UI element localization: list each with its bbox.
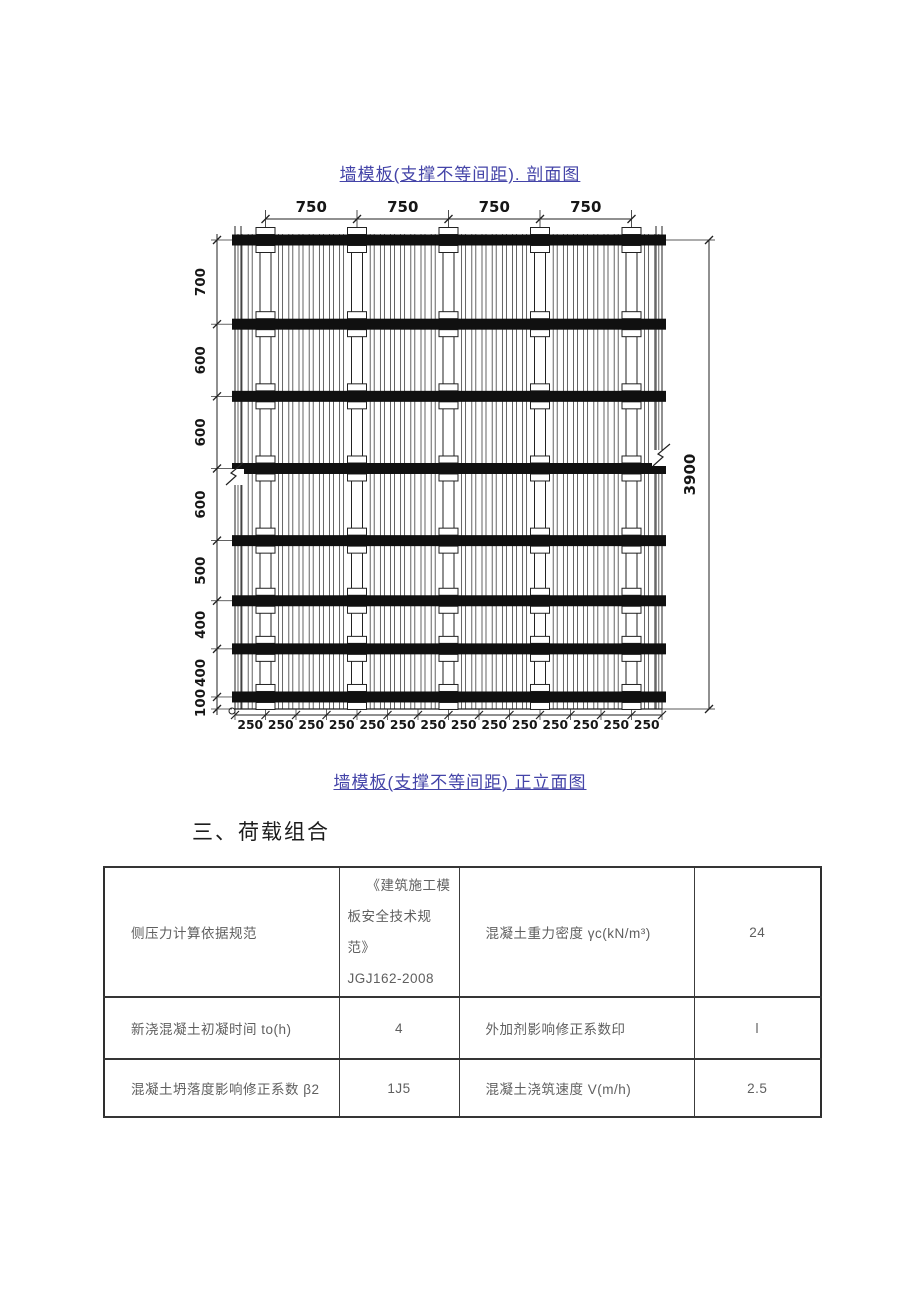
param-value-cell: 24 [694, 867, 821, 997]
param-label-cell: 混凝土重力密度 γc(kN/m³) [459, 867, 694, 997]
svg-text:250: 250 [298, 718, 324, 732]
svg-text:100: 100 [193, 689, 209, 717]
svg-text:600: 600 [193, 418, 209, 446]
value-line: 板安全技术规范》 [348, 901, 451, 963]
section-view-caption: 墙模板(支撑不等间距). 剖面图 [0, 160, 920, 185]
svg-text:600: 600 [193, 346, 209, 374]
param-label-cell: 外加剂影响修正系数印 [459, 997, 694, 1059]
param-label-cell: 新浇混凝土初凝时间 to(h) [104, 997, 339, 1059]
param-value-cell: 1J5 [339, 1059, 459, 1117]
svg-text:250: 250 [237, 718, 263, 732]
param-label-cell: 混凝土浇筑速度 V(m/h) [459, 1059, 694, 1117]
load-parameters-table: 侧压力计算依据规范《建筑施工模板安全技术规范》JGJ162-2008混凝土重力密… [103, 866, 822, 1118]
section-view-link[interactable]: 墙模板(支撑不等间距). 剖面图 [340, 165, 581, 184]
front-elevation-caption: 墙模板(支撑不等间距) 正立面图 [0, 768, 920, 793]
svg-text:500: 500 [193, 557, 209, 585]
svg-text:250: 250 [268, 718, 294, 732]
svg-text:600: 600 [193, 490, 209, 518]
param-value-cell: 4 [339, 997, 459, 1059]
svg-text:400: 400 [193, 611, 209, 639]
bottom-dimension: 2502502502502502502502502502502502502502… [231, 709, 666, 732]
table-row: 新浇混凝土初凝时间 to(h)4外加剂影响修正系数印l [104, 997, 821, 1059]
document-page: 墙模板(支撑不等间距). 剖面图 75075075075070060060060… [0, 0, 920, 1302]
table-row: 侧压力计算依据规范《建筑施工模板安全技术规范》JGJ162-2008混凝土重力密… [104, 867, 821, 997]
table-row: 混凝土坍落度影响修正系数 β21J5混凝土浇筑速度 V(m/h)2.5 [104, 1059, 821, 1117]
load-combination-heading: 三、荷载组合 [192, 816, 330, 846]
waler-bars [232, 235, 666, 703]
svg-text:750: 750 [570, 198, 601, 216]
svg-text:700: 700 [193, 268, 209, 296]
param-label-cell: 混凝土坍落度影响修正系数 β2 [104, 1059, 339, 1117]
svg-text:250: 250 [481, 718, 507, 732]
svg-text:250: 250 [603, 718, 629, 732]
load-parameters-table-body: 侧压力计算依据规范《建筑施工模板安全技术规范》JGJ162-2008混凝土重力密… [104, 867, 821, 1117]
value-line: 《建筑施工模 [348, 870, 451, 901]
svg-text:750: 750 [387, 198, 418, 216]
svg-text:250: 250 [542, 718, 568, 732]
svg-text:250: 250 [634, 718, 660, 732]
svg-text:250: 250 [329, 718, 355, 732]
svg-text:250: 250 [451, 718, 477, 732]
svg-text:250: 250 [420, 718, 446, 732]
front-elevation-link[interactable]: 墙模板(支撑不等间距) 正立面图 [333, 773, 586, 792]
svg-text:250: 250 [512, 718, 538, 732]
param-value-cell: 2.5 [694, 1059, 821, 1117]
right-dimension: 3900 [662, 236, 715, 713]
svg-text:400: 400 [193, 659, 209, 687]
svg-text:250: 250 [390, 718, 416, 732]
param-label-cell: 侧压力计算依据规范 [104, 867, 339, 997]
formwork-elevation-diagram: 7507507507507006006006005004004001003900… [190, 192, 735, 757]
formwork-elevation-drawing: 7507507507507006006006005004004001003900… [190, 192, 735, 757]
param-value-cell: l [694, 997, 821, 1059]
svg-text:250: 250 [359, 718, 385, 732]
svg-text:250: 250 [573, 718, 599, 732]
top-dimension: 750750750750 [262, 198, 636, 228]
svg-text:750: 750 [296, 198, 327, 216]
svg-text:3900: 3900 [681, 454, 699, 496]
svg-text:750: 750 [479, 198, 510, 216]
param-value-cell: 《建筑施工模板安全技术规范》JGJ162-2008 [339, 867, 459, 997]
value-line: JGJ162-2008 [348, 963, 451, 994]
